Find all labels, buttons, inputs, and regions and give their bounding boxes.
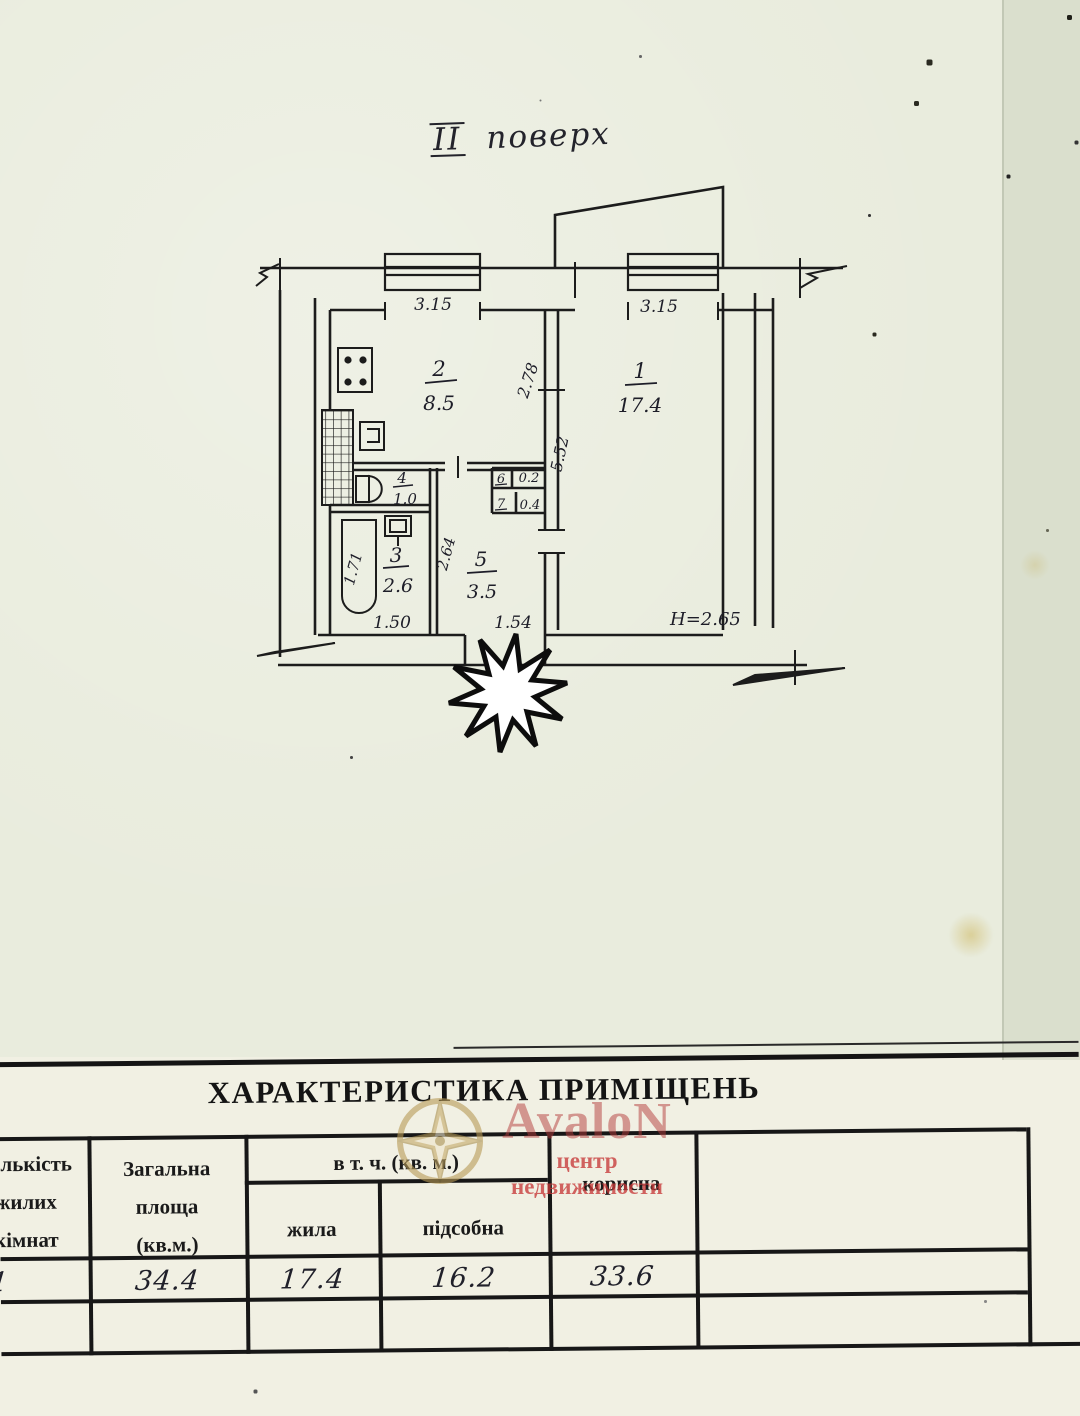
- header-line: Загальна: [92, 1149, 242, 1188]
- table-border: [1026, 1127, 1032, 1346]
- characteristics-section: ХАРАКТЕРИСТИКА ПРИМІЩЕНЬ Кількість жилих…: [0, 0, 1080, 1416]
- section-divider-line: [0, 1052, 1079, 1067]
- value-auxiliary-area: 16.2: [377, 1262, 550, 1295]
- value-rooms-count: 1: [0, 1267, 16, 1298]
- watermark-brand: AvaloN: [478, 1092, 696, 1151]
- scanned-document: ІІ поверх: [0, 0, 1080, 1416]
- compass-rose-icon: [392, 1093, 488, 1189]
- value-total-area: 34.4: [87, 1265, 247, 1298]
- header-line: (кв.м.): [92, 1225, 242, 1264]
- section-divider-line-thin: [454, 1041, 1079, 1049]
- header-line: Кількість: [0, 1144, 90, 1183]
- header-line: площа: [92, 1187, 242, 1226]
- header-line: жилих: [0, 1182, 90, 1221]
- table-border: [694, 1130, 700, 1349]
- header-living: жила: [245, 1210, 378, 1249]
- header-line: кімнат: [0, 1220, 91, 1259]
- header-rooms-count: Кількість жилих кімнат: [0, 1144, 91, 1259]
- watermark-subtitle: центр недвижимости: [480, 1148, 694, 1200]
- paper-speckles: [0, 0, 1, 1]
- value-living-area: 17.4: [244, 1264, 380, 1296]
- header-total-area: Загальна площа (кв.м.): [92, 1149, 243, 1264]
- header-auxiliary: підсобна: [378, 1208, 548, 1248]
- table-border: [1, 1342, 1080, 1356]
- value-useful-area: 33.6: [547, 1260, 697, 1292]
